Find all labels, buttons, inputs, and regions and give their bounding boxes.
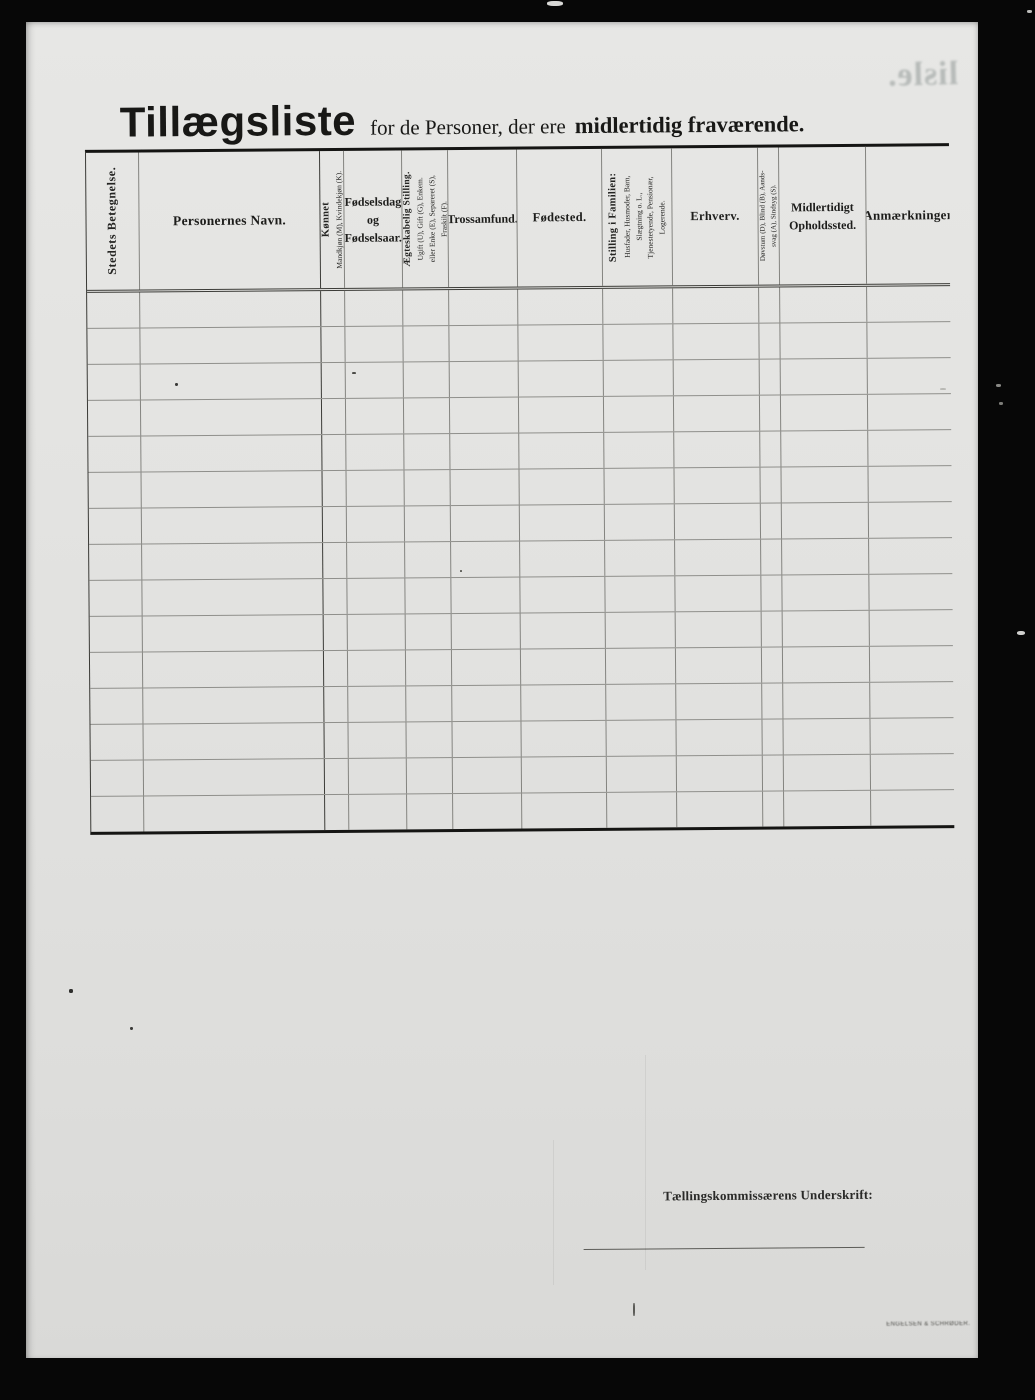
table-cell-empty [759, 359, 780, 394]
table-cell-empty [449, 362, 518, 398]
table-cell-empty [761, 683, 782, 718]
table-cell-empty [89, 580, 141, 615]
table-cell-empty [402, 326, 448, 361]
column-header-fodselsdag: Fødselsdag og Fødselsaar. [343, 150, 402, 287]
table-cell-empty [866, 286, 950, 322]
column-header-label: Døvstum (D), Blind (B), Aands- [758, 171, 768, 262]
column-header-trossamfund: Trossamfund. [447, 150, 517, 288]
table-cell-empty [781, 575, 868, 611]
printer-imprint: ENGELSEN & SCHRØDER. [886, 1321, 970, 1328]
table-cell-empty [521, 793, 606, 829]
table-cell-empty [867, 358, 951, 394]
column-header-label: Stedets Betegnelse. [104, 167, 120, 275]
table-cell-empty [870, 790, 954, 826]
scan-speck [1017, 631, 1025, 635]
table-cell-empty [867, 394, 951, 430]
table-cell-empty [517, 289, 602, 325]
table-cell-empty [404, 542, 450, 577]
column-header-label: Fødselsaar. [344, 228, 401, 246]
column-header-sublabel: Husfader, Husmoder, Barn, [622, 176, 632, 258]
table-cell-empty [90, 724, 142, 759]
scan-speck [547, 1, 563, 6]
table-cell-empty [89, 472, 141, 507]
table-cell-empty [452, 794, 521, 830]
table-cell-empty [322, 507, 346, 542]
table-cell-empty [675, 684, 761, 720]
scan-speck [130, 1027, 133, 1030]
table-cell-empty [402, 290, 448, 325]
table-cell-empty [403, 470, 449, 505]
table-cell-empty [404, 578, 450, 613]
table-cell-empty [674, 576, 760, 612]
column-header-label: Opholdssted. [789, 215, 856, 234]
table-cell-empty [780, 467, 867, 503]
table-cell-empty [519, 505, 604, 541]
table-cell-empty [347, 650, 405, 685]
scan-speck [352, 372, 356, 374]
table-cell-empty [517, 325, 602, 361]
table-cell-empty [346, 578, 404, 613]
table-cell-empty [780, 431, 867, 467]
column-header-sublabel: Fraskilt (F). [439, 201, 448, 237]
table-cell-empty [140, 363, 321, 399]
table-cell-empty [761, 647, 782, 682]
table-cell-empty [604, 504, 674, 540]
column-header-stedets-betegnelse: Stedets Betegnelse. [86, 152, 139, 289]
table-cell-empty [673, 396, 759, 432]
table-cell-empty [674, 504, 760, 540]
table-cell-empty [89, 508, 141, 543]
table-cell-empty [760, 575, 781, 610]
table-cell-empty [866, 322, 950, 358]
table-cell-empty [673, 360, 759, 396]
table-cell-empty [606, 756, 676, 792]
table-cell-empty [779, 287, 866, 323]
column-header-erhverv: Erhverv. [671, 148, 758, 286]
table-cell-empty [91, 796, 143, 831]
table-cell-empty [142, 651, 323, 687]
column-header-label: Fødselsdag [344, 192, 401, 210]
scan-speck [940, 388, 946, 390]
table-cell-empty [780, 395, 867, 431]
table-cell-empty [450, 578, 519, 614]
table-cell-empty [605, 648, 675, 684]
column-header-sublabel: Tjenestetyende, Pensionær, [646, 176, 656, 258]
table-cell-empty [675, 648, 761, 684]
column-header-label: og [367, 210, 379, 228]
signature-line [584, 1247, 865, 1250]
table-cell-empty [869, 610, 953, 646]
table-cell-empty [602, 288, 672, 324]
table-cell-empty [868, 538, 952, 574]
table-cell-empty [782, 719, 869, 755]
table-cell-empty [90, 688, 142, 723]
table-cell-empty [758, 287, 779, 322]
table-cell-empty [347, 614, 405, 649]
table-cell-empty [605, 720, 675, 756]
table-cell-empty [140, 399, 321, 435]
table-cell-empty [603, 468, 673, 504]
table-cell-empty [142, 687, 323, 723]
column-header-personernes-navn: Personernes Navn. [138, 151, 320, 289]
table-cell-empty [603, 396, 673, 432]
sheet-content: Tillægsliste for de Personer, der ere mi… [25, 18, 987, 1361]
table-cell-empty [347, 722, 405, 757]
table-cell-empty [143, 795, 324, 831]
table-cell-empty [90, 616, 142, 651]
column-header-midlertidigt-opholdssted: Midlertidigt Opholdssted. [778, 147, 866, 285]
table-cell-empty [403, 398, 449, 433]
table-cell-empty [450, 506, 519, 542]
table-cell-empty [451, 614, 520, 650]
table-cell-empty [141, 579, 322, 615]
table-cell-empty [759, 395, 780, 430]
table-cell-empty [759, 467, 780, 502]
table-cell-empty [323, 651, 347, 686]
table-cell-empty [676, 756, 762, 792]
table-cell-empty [344, 290, 402, 325]
table-cell-empty [321, 363, 345, 398]
column-header-aegteskabelig-stilling: Ægteskabelig Stilling. Ugift (U), Gift (… [401, 150, 448, 287]
table-cell-empty [139, 291, 320, 327]
table-cell-empty [782, 683, 869, 719]
table-cell-empty [141, 471, 322, 507]
table-cell-empty [762, 791, 783, 826]
table-cell-empty [675, 612, 761, 648]
signature-label: Tællingskommissærens Underskrift: [663, 1187, 873, 1205]
table-cell-empty [321, 399, 345, 434]
column-header-sublabel: Logerende. [657, 200, 667, 234]
table-cell-empty [320, 327, 344, 362]
table-cell-empty [88, 400, 140, 435]
table-cell-empty [91, 760, 143, 795]
table-cell-empty [346, 470, 404, 505]
table-cell-empty [88, 364, 140, 399]
table-cell-empty [780, 359, 867, 395]
table-cell-empty [88, 436, 140, 471]
table-cell-empty [604, 540, 674, 576]
table-cell-empty [781, 539, 868, 575]
table-cell-empty [89, 544, 141, 579]
table-cell-empty [324, 795, 348, 830]
table-cell-empty [322, 579, 346, 614]
table-cell-empty [345, 398, 403, 433]
column-header-anmaerkninger: Anmærkninger [865, 146, 950, 284]
column-header-label: Fødested. [533, 210, 587, 225]
table-cell-empty [761, 719, 782, 754]
table-cell-empty [782, 647, 869, 683]
column-header-sublabel: svag (A), Sindsyg (S). [769, 185, 779, 247]
table-cell-empty [605, 684, 675, 720]
table-cell-empty [324, 759, 348, 794]
scan-speck [175, 383, 178, 386]
table-cell-empty [676, 792, 762, 828]
column-header-sublabel: eller Enke (E), Separeret (S), [427, 175, 437, 262]
table-cell-empty [346, 542, 404, 577]
table-cell-empty [323, 615, 347, 650]
table-cell-empty [323, 687, 347, 722]
page-title-main: Tillægsliste [120, 97, 357, 147]
table-row [91, 790, 954, 832]
column-header-sublabel: Mandkjøn (M), Kvindekjøn (K). [335, 171, 344, 269]
table-cell-empty [675, 720, 761, 756]
table-cell-empty [782, 611, 869, 647]
table-cell-empty [520, 685, 605, 721]
table-cell-empty [518, 397, 603, 433]
table-cell-empty [87, 328, 139, 363]
column-header-label: Midlertidigt [791, 197, 854, 215]
table-cell-empty [323, 723, 347, 758]
table-cell-empty [345, 362, 403, 397]
page-title-subtitle-bold: midlertidig fraværende. [575, 111, 805, 139]
scan-speck [633, 1303, 635, 1316]
table-cell-empty [783, 791, 870, 827]
table-cell-empty [518, 469, 603, 505]
table-cell-empty [519, 541, 604, 577]
table-cell-empty [404, 506, 450, 541]
table-cell-empty [867, 466, 951, 502]
table-cell-empty [674, 540, 760, 576]
table-cell-empty [605, 612, 675, 648]
table-cell-empty [345, 434, 403, 469]
table-cell-empty [604, 576, 674, 612]
column-header-konnet: Kønnet Mandkjøn (M), Kvindekjøn (K). [319, 151, 344, 288]
table-cell-empty [87, 292, 139, 327]
table-cell-empty [520, 613, 605, 649]
table-cell-empty [672, 324, 758, 360]
scan-speck [460, 570, 462, 572]
column-header-label: Erhverv. [690, 209, 739, 224]
column-header-sublabel: Slægtning o. L., [634, 193, 644, 241]
table-cell-empty [760, 503, 781, 538]
table-cell-empty [761, 611, 782, 646]
table-cell-empty [321, 435, 345, 470]
table-cell-empty [451, 722, 520, 758]
table-cell-empty [760, 539, 781, 574]
table-cell-empty [449, 470, 518, 506]
table-cell-empty [322, 543, 346, 578]
table-cell-empty [142, 723, 323, 759]
table-cell-empty [451, 686, 520, 722]
table-cell-empty [405, 722, 451, 757]
table-cell-empty [403, 362, 449, 397]
table-cell-empty [869, 646, 953, 682]
table-cell-empty [451, 650, 520, 686]
table-cell-empty [320, 291, 344, 326]
table-cell-empty [869, 718, 953, 754]
column-header-label: Kønnet [319, 202, 333, 237]
column-header-label: Stilling i Familien: [606, 172, 620, 262]
table-cell-empty [449, 398, 518, 434]
scan-speck [999, 402, 1003, 405]
table-cell-empty [348, 758, 406, 793]
table-cell-empty [521, 757, 606, 793]
table-cell-empty [867, 430, 951, 466]
table-cell-empty [519, 577, 604, 613]
table-cell-empty [870, 754, 954, 790]
table-cell-empty [779, 323, 866, 359]
table-cell-empty [606, 792, 676, 828]
scan-streak [645, 1055, 646, 1270]
column-header-sublabel: Ugift (U), Gift (G), Enkem. [415, 177, 425, 260]
page-title: Tillægsliste for de Personer, der ere mi… [120, 93, 805, 146]
scan-streak [553, 1140, 554, 1285]
table-cell-empty [603, 432, 673, 468]
table-cell-empty [603, 360, 673, 396]
table-cell-empty [143, 759, 324, 795]
table-cell-empty [673, 468, 759, 504]
table-cell-empty [520, 649, 605, 685]
scanned-census-sheet: lisle. Tillægsliste for de Personer, der… [26, 22, 978, 1358]
column-header-label: Personernes Navn. [173, 212, 286, 229]
table-cell-empty [405, 650, 451, 685]
table-cell-empty [518, 361, 603, 397]
table-cell-empty [762, 755, 783, 790]
table-cell-empty [673, 432, 759, 468]
table-cell-empty [672, 288, 758, 324]
table-cell-empty [347, 686, 405, 721]
table-cell-empty [403, 434, 449, 469]
column-header-label: Ægteskabelig Stilling. [401, 171, 414, 266]
table-cell-empty [405, 686, 451, 721]
table-cell-empty [869, 682, 953, 718]
table-cell-empty [90, 652, 142, 687]
column-header-label: Anmærkninger [865, 207, 950, 224]
table-cell-empty [348, 794, 406, 829]
table-cell-empty [139, 327, 320, 363]
table-cell-empty [142, 615, 323, 651]
table-cell-empty [449, 434, 518, 470]
table-header-row: Stedets Betegnelse. Personernes Navn. Kø… [86, 146, 950, 293]
scan-speck [996, 384, 1001, 387]
table-cell-empty [346, 506, 404, 541]
census-table: Stedets Betegnelse. Personernes Navn. Kø… [85, 143, 954, 835]
table-cell-empty [758, 323, 779, 358]
table-cell-empty [140, 435, 321, 471]
table-cell-empty [759, 431, 780, 466]
table-cell-empty [448, 326, 517, 362]
table-cell-empty [781, 503, 868, 539]
page-title-subtitle: for de Personer, der ere [370, 114, 566, 141]
table-cell-empty [602, 324, 672, 360]
column-header-label: Trossamfund. [447, 209, 517, 228]
table-cell-empty [520, 721, 605, 757]
table-cell-empty [783, 755, 870, 791]
table-cell-empty [141, 543, 322, 579]
table-body [87, 286, 954, 832]
table-cell-empty [344, 326, 402, 361]
table-cell-empty [405, 614, 451, 649]
table-cell-empty [452, 758, 521, 794]
column-header-stilling-i-familien: Stilling i Familien: Husfader, Husmoder,… [601, 148, 672, 286]
table-cell-empty [406, 794, 452, 829]
scan-speck [69, 989, 73, 993]
table-cell-empty [868, 574, 952, 610]
column-header-dovstum: Døvstum (D), Blind (B), Aands- svag (A),… [757, 147, 779, 284]
table-cell-empty [448, 290, 517, 326]
table-cell-empty [322, 471, 346, 506]
table-cell-empty [406, 758, 452, 793]
table-cell-empty [141, 507, 322, 543]
column-header-fodested: Fødested. [516, 149, 602, 287]
table-cell-empty [868, 502, 952, 538]
scan-speck [1027, 10, 1032, 13]
table-cell-empty [518, 433, 603, 469]
